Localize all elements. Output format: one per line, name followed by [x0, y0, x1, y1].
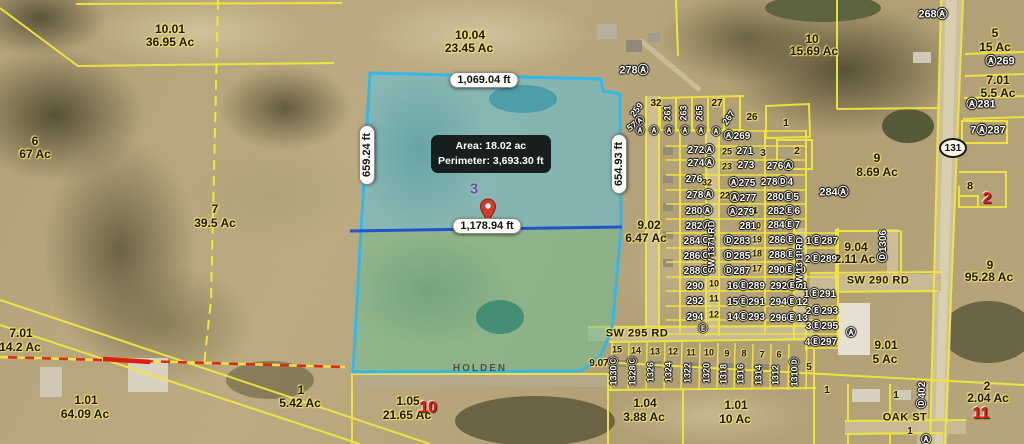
map-canvas[interactable]: 10.0136.95 Ac10.0423.45 Ac667 Ac739.5 Ac…: [0, 0, 1024, 444]
measurement-area-text: Area: 18.02 ac: [438, 139, 544, 154]
measurement-perimeter-text: Perimeter: 3,693.30 ft: [438, 154, 544, 169]
highway-131-shield: 131: [939, 138, 967, 158]
selected-parcel-number: 3: [470, 182, 478, 197]
measurement-info-box: Area: 18.02 ac Perimeter: 3,693.30 ft: [431, 135, 551, 173]
selected-parcel-polygon[interactable]: [353, 73, 621, 372]
section-line-dashed: [0, 0, 345, 367]
pond-shapes: [226, 0, 1024, 444]
map-overlay-svg: [0, 0, 1024, 444]
